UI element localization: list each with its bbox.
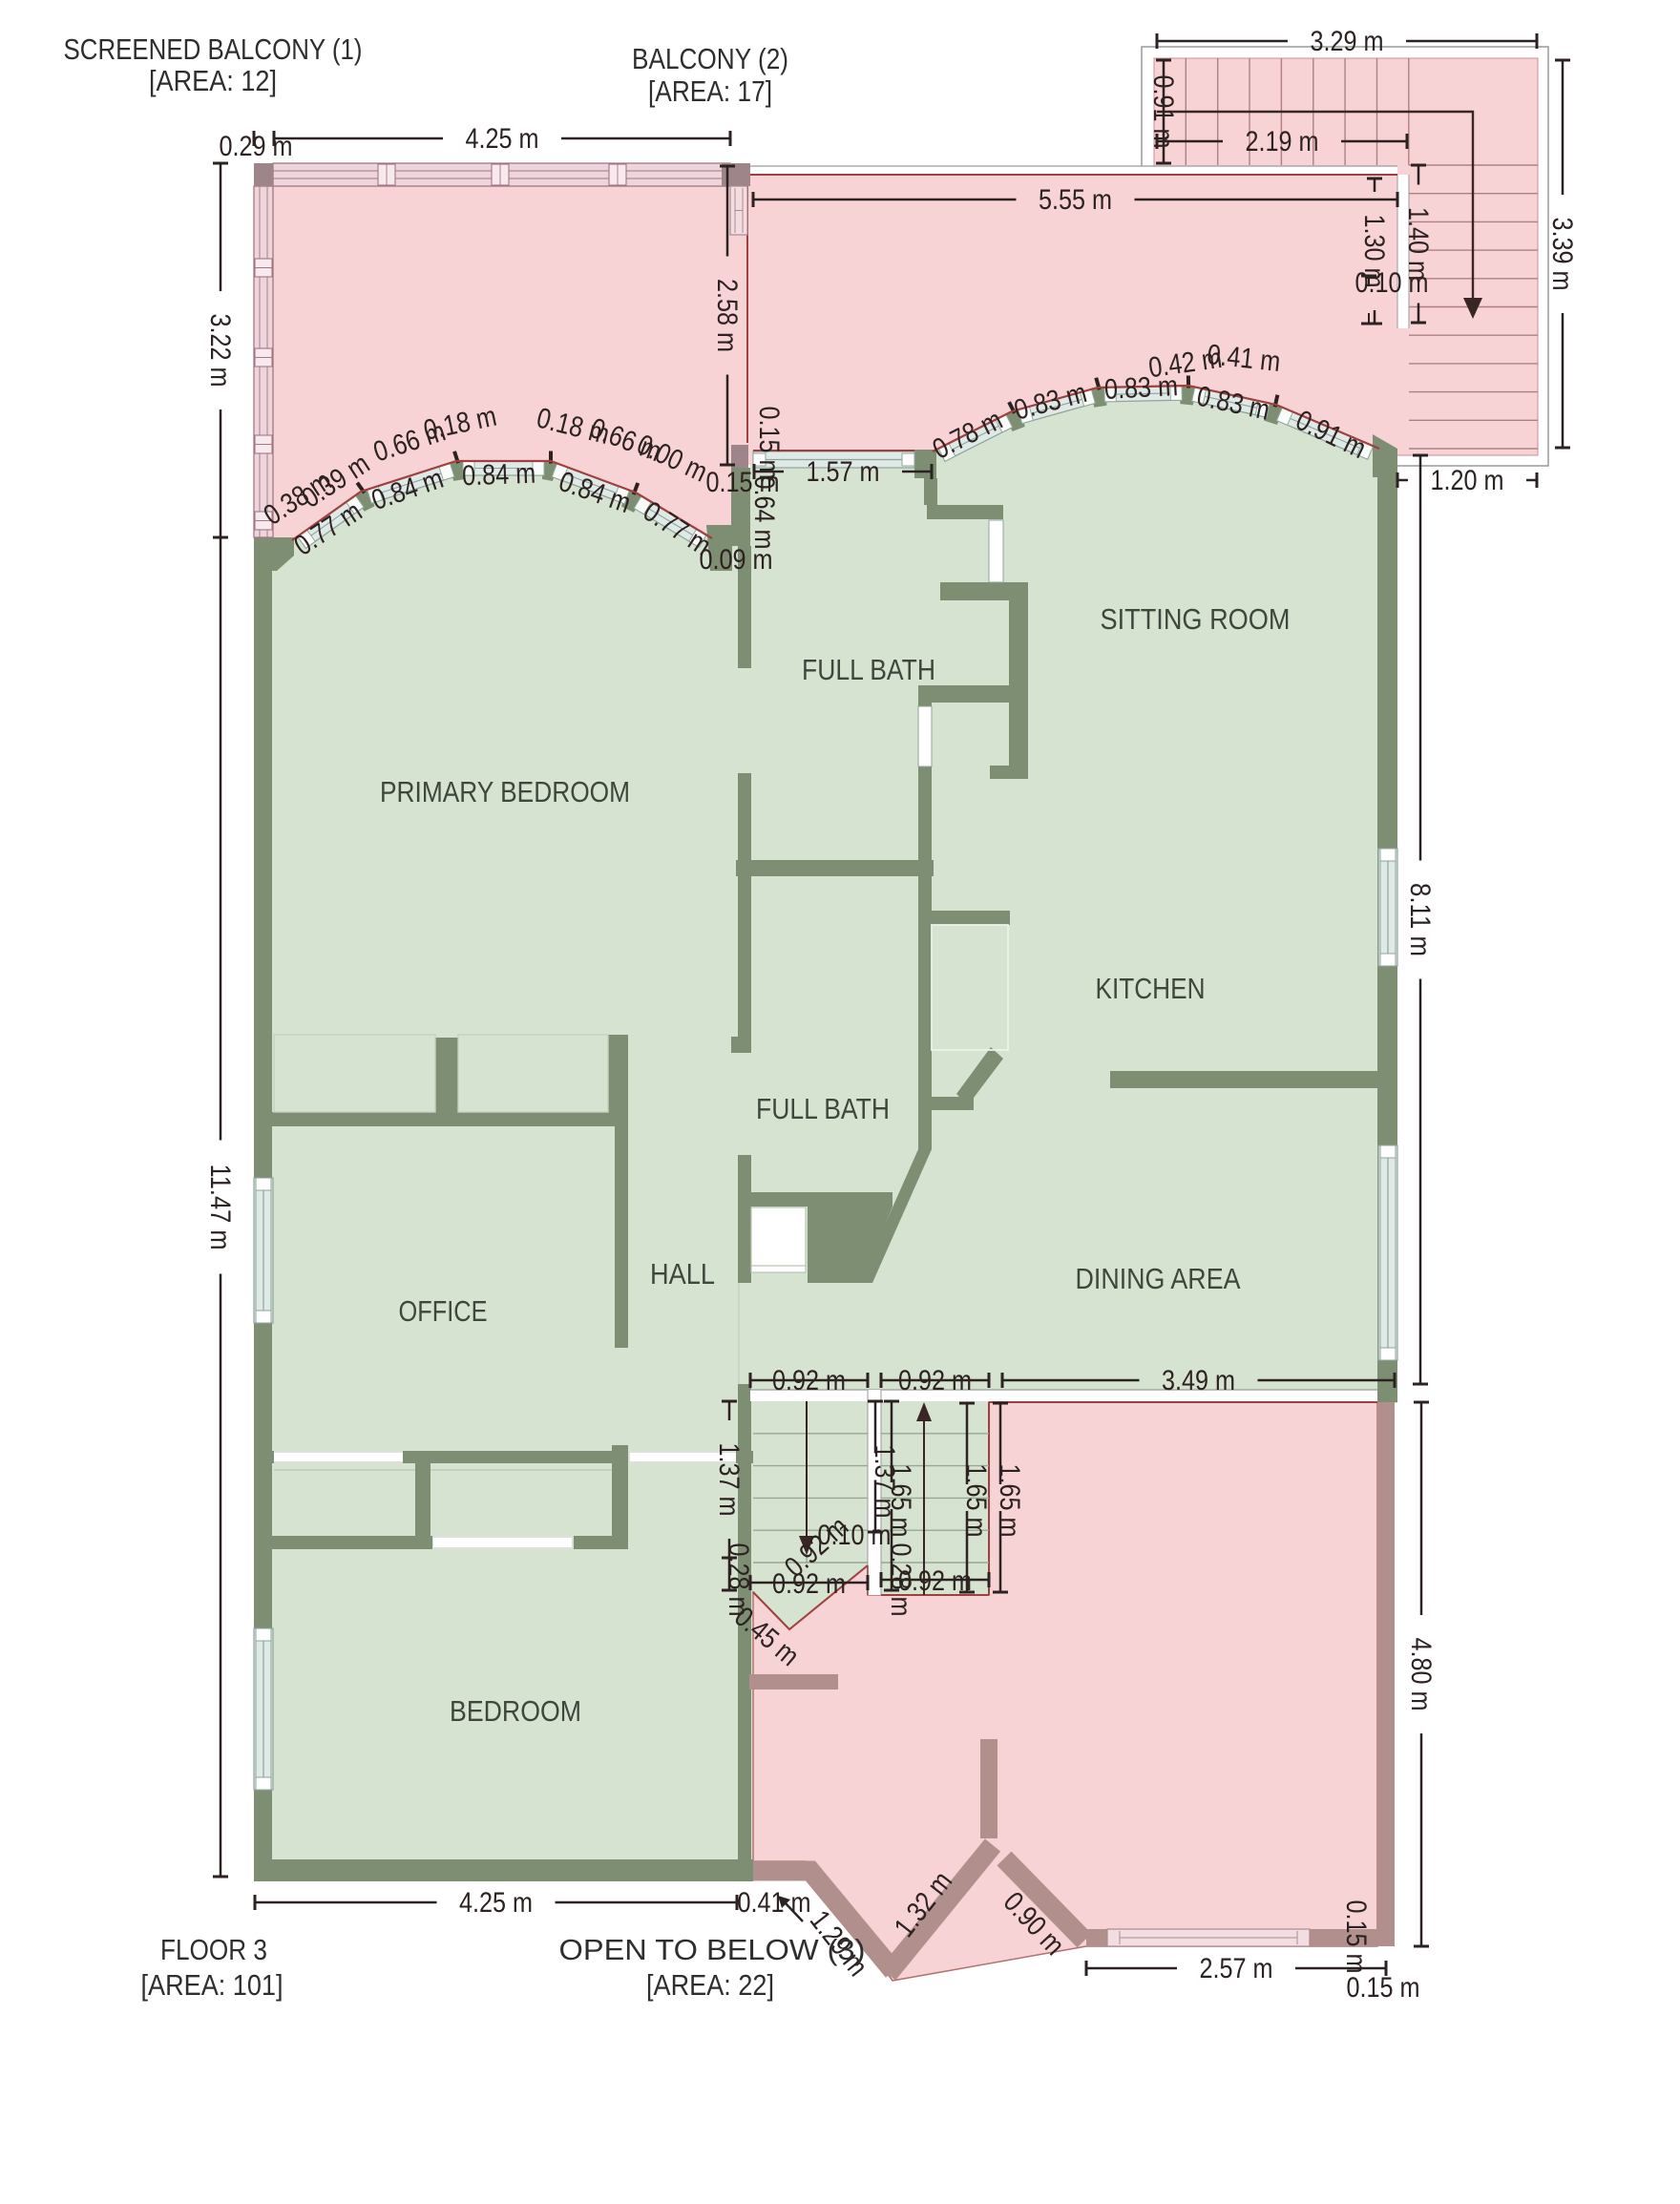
svg-text:1.37 m: 1.37 m bbox=[713, 1443, 745, 1517]
svg-text:0.91 m: 0.91 m bbox=[1147, 75, 1179, 149]
svg-text:0.15 m: 0.15 m bbox=[1347, 1972, 1420, 2004]
svg-text:SCREENED BALCONY (1): SCREENED BALCONY (1) bbox=[64, 32, 363, 66]
svg-text:0.09 m: 0.09 m bbox=[700, 544, 773, 576]
svg-text:0.92 m: 0.92 m bbox=[898, 1565, 972, 1597]
svg-text:OPEN TO BELOW (3): OPEN TO BELOW (3) bbox=[559, 1933, 866, 1966]
svg-text:0.10 m: 0.10 m bbox=[818, 1520, 892, 1551]
svg-text:PRIMARY BEDROOM: PRIMARY BEDROOM bbox=[380, 775, 630, 808]
svg-text:4.80 m: 4.80 m bbox=[1405, 1638, 1437, 1711]
svg-text:[AREA: 101]: [AREA: 101] bbox=[141, 1968, 283, 2002]
svg-text:KITCHEN: KITCHEN bbox=[1096, 972, 1206, 1005]
svg-text:[AREA: 17]: [AREA: 17] bbox=[648, 74, 772, 108]
svg-text:0.84 m: 0.84 m bbox=[462, 458, 536, 493]
svg-text:4.25 m: 4.25 m bbox=[459, 1887, 533, 1919]
svg-text:1.57 m: 1.57 m bbox=[807, 456, 880, 488]
svg-text:0.83 m: 0.83 m bbox=[1103, 370, 1179, 406]
svg-text:DINING AREA: DINING AREA bbox=[1076, 1262, 1241, 1295]
svg-text:HALL: HALL bbox=[650, 1257, 715, 1291]
svg-text:BALCONY (2): BALCONY (2) bbox=[632, 42, 788, 75]
svg-text:BEDROOM: BEDROOM bbox=[450, 1694, 581, 1728]
svg-text:1.20 m: 1.20 m bbox=[1431, 465, 1504, 496]
svg-text:3.39 m: 3.39 m bbox=[1546, 218, 1578, 291]
svg-text:0.15 m: 0.15 m bbox=[1340, 1900, 1372, 1974]
svg-text:11.47 m: 11.47 m bbox=[204, 1165, 236, 1250]
svg-text:SITTING ROOM: SITTING ROOM bbox=[1101, 602, 1291, 636]
svg-text:FULL BATH: FULL BATH bbox=[756, 1092, 890, 1125]
svg-text:3.22 m: 3.22 m bbox=[204, 314, 236, 388]
svg-text:1.65 m: 1.65 m bbox=[885, 1464, 916, 1538]
svg-text:0.10 m: 0.10 m bbox=[1355, 267, 1429, 299]
svg-text:[AREA: 12]: [AREA: 12] bbox=[149, 64, 277, 97]
svg-text:1.65 m: 1.65 m bbox=[960, 1464, 992, 1538]
svg-text:0.29 m: 0.29 m bbox=[220, 131, 293, 162]
svg-text:4.25 m: 4.25 m bbox=[466, 123, 539, 155]
svg-text:FULL BATH: FULL BATH bbox=[802, 653, 935, 686]
svg-text:2.57 m: 2.57 m bbox=[1200, 1953, 1273, 1984]
svg-text:3.29 m: 3.29 m bbox=[1311, 26, 1384, 57]
svg-text:3.49 m: 3.49 m bbox=[1162, 1365, 1235, 1396]
svg-text:0.92 m: 0.92 m bbox=[772, 1365, 846, 1396]
svg-text:0.41 m: 0.41 m bbox=[738, 1887, 811, 1919]
svg-text:5.55 m: 5.55 m bbox=[1039, 184, 1112, 216]
svg-text:FLOOR 3: FLOOR 3 bbox=[160, 1933, 267, 1966]
svg-text:8.11 m: 8.11 m bbox=[1404, 883, 1436, 956]
svg-text:[AREA: 22]: [AREA: 22] bbox=[646, 1968, 774, 2002]
svg-text:0.64 m: 0.64 m bbox=[748, 476, 780, 550]
svg-text:2.58 m: 2.58 m bbox=[711, 279, 743, 352]
svg-text:1.65 m: 1.65 m bbox=[994, 1464, 1025, 1538]
svg-text:0.92 m: 0.92 m bbox=[898, 1365, 972, 1396]
svg-text:2.19 m: 2.19 m bbox=[1246, 126, 1319, 157]
svg-text:OFFICE: OFFICE bbox=[399, 1294, 488, 1328]
